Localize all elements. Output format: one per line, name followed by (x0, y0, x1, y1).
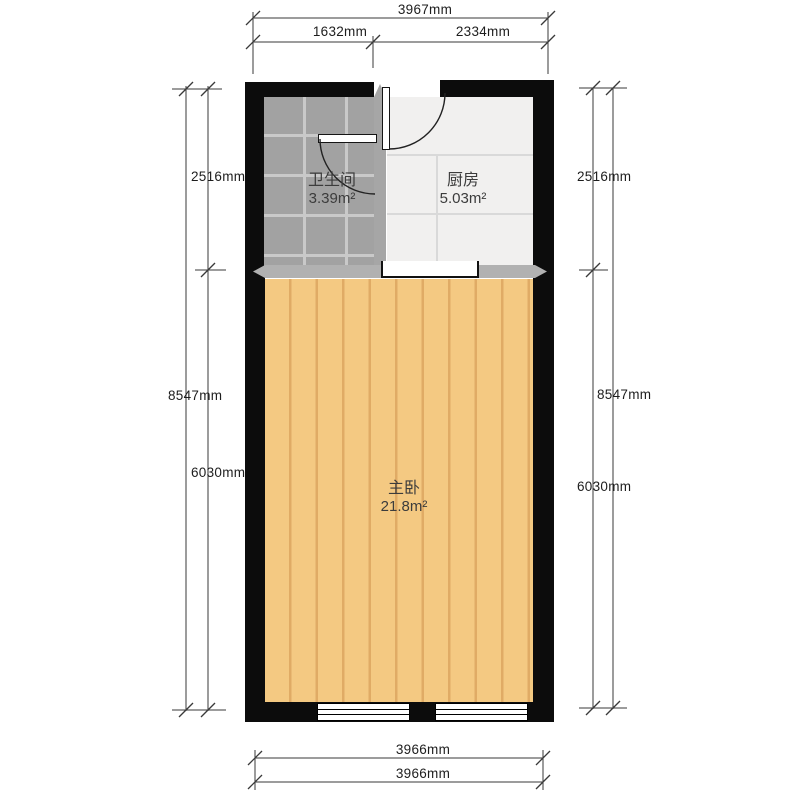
dim-top-segment1: 1632mm (290, 24, 390, 39)
dim-bottom-inner: 3966mm (373, 766, 473, 781)
kitchen-name: 厨房 (408, 172, 518, 190)
dim-left-total: 8547mm (168, 388, 222, 403)
window (435, 703, 528, 721)
entry-door-leaf (382, 87, 390, 150)
bathroom-name: 卫生间 (277, 172, 387, 190)
dim-right-total: 8547mm (597, 387, 651, 402)
dim-left-lower: 6030mm (191, 465, 245, 480)
kitchen-area: 5.03m² (408, 190, 518, 207)
bathroom-label: 卫生间 3.39m² (277, 172, 387, 207)
dim-bottom-outer: 3966mm (373, 742, 473, 757)
bathroom-door-leaf (318, 134, 377, 143)
kitchen-doorway-opening (381, 261, 479, 278)
dim-left-upper: 2516mm (191, 169, 245, 184)
dim-right-lower: 6030mm (577, 479, 631, 494)
kitchen-label: 厨房 5.03m² (408, 172, 518, 207)
bedroom-name: 主卧 (349, 480, 459, 498)
floor-plan: 3967mm 1632mm 2334mm 2516mm 8547mm 6030m… (0, 0, 800, 800)
bedroom-label: 主卧 21.8m² (349, 480, 459, 515)
dim-top-segment2: 2334mm (433, 24, 533, 39)
bedroom-area: 21.8m² (349, 498, 459, 515)
dim-right-upper: 2516mm (577, 169, 631, 184)
dim-top-total: 3967mm (375, 2, 475, 17)
right-wall (533, 80, 554, 722)
left-wall (245, 82, 265, 722)
top-wall-left (245, 82, 374, 98)
bathroom-area: 3.39m² (277, 190, 387, 207)
window (317, 703, 410, 721)
